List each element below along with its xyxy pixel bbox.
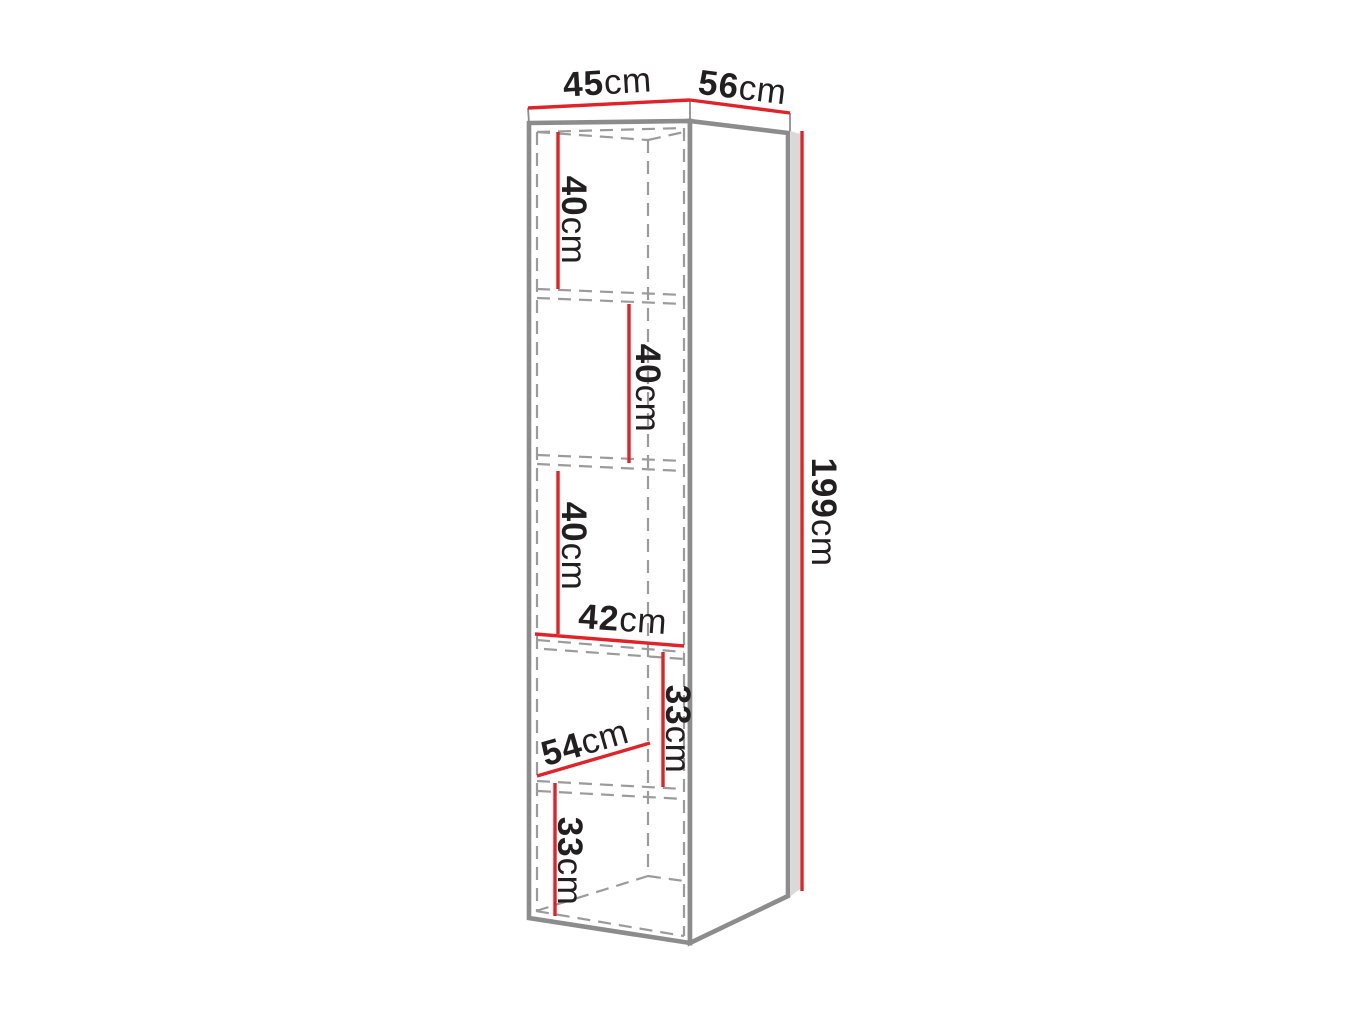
top-depth-value: 56 <box>696 63 741 107</box>
inner-width-value: 42 <box>577 597 621 639</box>
total-height-unit: cm <box>804 519 843 567</box>
shelf-3-height-label: 40cm <box>554 502 593 591</box>
inner-width-unit: cm <box>618 600 668 642</box>
shelf-2-height-unit: cm <box>628 385 667 433</box>
shelf-5-height-label: 33cm <box>550 817 589 906</box>
shelf-3-height-unit: cm <box>554 543 593 591</box>
shelf-4-height-unit: cm <box>658 726 697 774</box>
side-panel-shade <box>791 131 800 896</box>
shelf-5-height-unit: cm <box>550 858 589 906</box>
shelf-4-height-value: 33 <box>658 685 697 726</box>
top-width-value: 45 <box>562 63 605 104</box>
cabinet-dimension-drawing: 45cm 56cm 199cm 40cm 40cm 40cm 42cm 33cm… <box>0 0 1364 1023</box>
top-width-unit: cm <box>603 60 653 102</box>
shelf-2-height-value: 40 <box>628 344 667 385</box>
total-height-value: 199 <box>804 457 843 518</box>
cabinet-side-face <box>690 121 788 943</box>
total-height-label: 199cm <box>804 457 843 566</box>
shelf-2-height-label: 40cm <box>628 344 667 433</box>
shelf-1-height-label: 40cm <box>554 176 593 265</box>
shelf-4-height-label: 33cm <box>658 685 697 774</box>
inner-width-label: 42cm <box>577 597 668 642</box>
shelf-1-height-unit: cm <box>554 217 593 265</box>
top-width-label: 45cm <box>562 60 653 104</box>
top-depth-unit: cm <box>737 68 789 113</box>
dimension-diagram-page: 45cm 56cm 199cm 40cm 40cm 40cm 42cm 33cm… <box>0 0 1364 1023</box>
shelf-1-height-value: 40 <box>554 176 593 217</box>
shelf-5-height-value: 33 <box>550 817 589 858</box>
shelf-3-height-value: 40 <box>554 502 593 543</box>
